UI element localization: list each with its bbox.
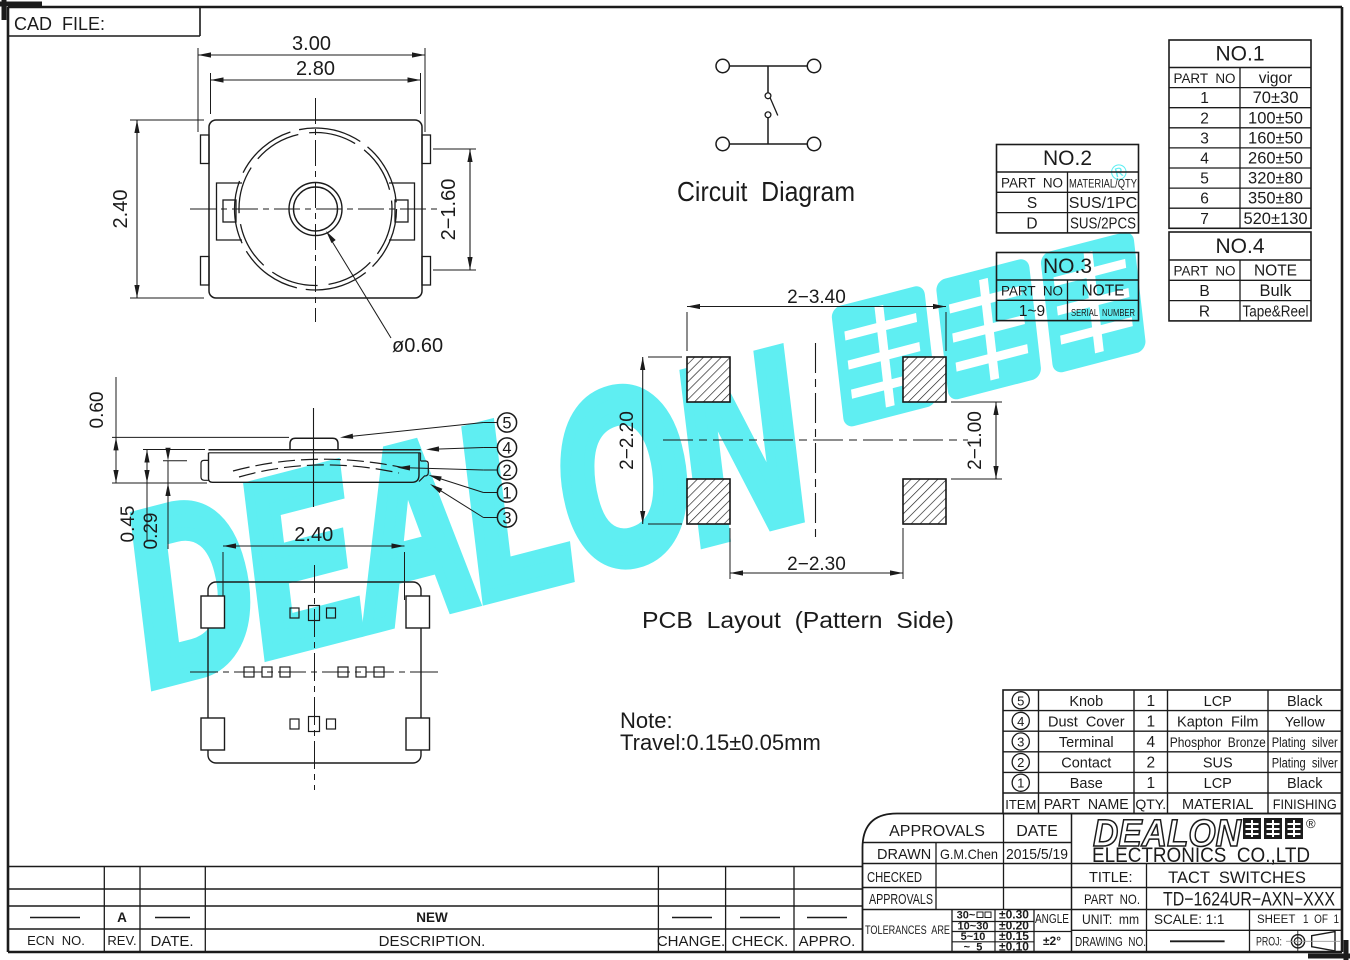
svg-text:DATE.: DATE. bbox=[150, 933, 193, 950]
svg-text:7: 7 bbox=[1200, 211, 1209, 228]
svg-text:1: 1 bbox=[502, 484, 511, 502]
svg-text:TITLE:: TITLE: bbox=[1089, 870, 1133, 886]
svg-text:PART NAME: PART NAME bbox=[1044, 797, 1129, 813]
svg-text:~ 5: ~ 5 bbox=[964, 942, 983, 954]
svg-text:CAD FILE:: CAD FILE: bbox=[14, 14, 105, 34]
svg-text:LCP: LCP bbox=[1204, 694, 1232, 710]
svg-text:PART NO: PART NO bbox=[1001, 284, 1063, 299]
svg-text:SUS/1PC: SUS/1PC bbox=[1069, 195, 1137, 212]
svg-text:0.60: 0.60 bbox=[87, 392, 108, 429]
svg-text:3: 3 bbox=[502, 509, 511, 527]
svg-text:±2°: ±2° bbox=[1043, 934, 1061, 948]
svg-text:1 OF 1: 1 OF 1 bbox=[1303, 914, 1339, 926]
svg-text:NO.1: NO.1 bbox=[1215, 43, 1264, 66]
svg-text:NEW: NEW bbox=[416, 910, 448, 925]
svg-text:5: 5 bbox=[1017, 693, 1024, 708]
svg-text:Dust Cover: Dust Cover bbox=[1048, 714, 1125, 730]
svg-text:Black: Black bbox=[1287, 776, 1323, 792]
svg-text:NO.3: NO.3 bbox=[1043, 255, 1092, 278]
svg-text:G.M.Chen: G.M.Chen bbox=[940, 846, 998, 862]
svg-text:Phosphor Bronze: Phosphor Bronze bbox=[1170, 734, 1266, 750]
svg-text:TOLERANCES ARE: TOLERANCES ARE bbox=[865, 925, 950, 937]
svg-text:SHEET: SHEET bbox=[1257, 914, 1295, 926]
svg-text:2: 2 bbox=[1200, 110, 1209, 127]
svg-text:1:1: 1:1 bbox=[1206, 912, 1225, 927]
svg-text:±0.10: ±0.10 bbox=[999, 940, 1029, 954]
svg-text:TACT SWITCHES: TACT SWITCHES bbox=[1168, 869, 1306, 887]
svg-text:320±80: 320±80 bbox=[1248, 170, 1303, 188]
svg-text:Bulk: Bulk bbox=[1259, 282, 1292, 300]
svg-text:5: 5 bbox=[502, 414, 511, 432]
svg-text:DRAWING NO.: DRAWING NO. bbox=[1075, 934, 1146, 949]
svg-text:1: 1 bbox=[1146, 693, 1155, 710]
svg-text:ITEM: ITEM bbox=[1005, 797, 1036, 812]
svg-text:160±50: 160±50 bbox=[1248, 129, 1303, 147]
svg-text:Plating silver: Plating silver bbox=[1272, 756, 1338, 771]
svg-text:1: 1 bbox=[1200, 90, 1209, 107]
svg-text:Circuit Diagram: Circuit Diagram bbox=[677, 176, 855, 207]
svg-text:S: S bbox=[1027, 195, 1037, 212]
svg-text:SUS/2PCS: SUS/2PCS bbox=[1070, 215, 1136, 232]
svg-text:Yellow: Yellow bbox=[1285, 713, 1326, 729]
svg-text:1~9: 1~9 bbox=[1019, 303, 1045, 320]
svg-text:MATERIAL/QTY: MATERIAL/QTY bbox=[1069, 179, 1137, 191]
svg-text:350±80: 350±80 bbox=[1248, 190, 1303, 208]
svg-text:4: 4 bbox=[1200, 150, 1209, 167]
svg-text:3: 3 bbox=[1200, 130, 1209, 147]
svg-text:APPROVALS: APPROVALS bbox=[869, 892, 933, 908]
svg-text:CHANGE.: CHANGE. bbox=[657, 933, 725, 950]
svg-text:Kapton Film: Kapton Film bbox=[1177, 714, 1258, 730]
svg-text:APPROVALS: APPROVALS bbox=[889, 823, 985, 840]
svg-text:Plating silver: Plating silver bbox=[1272, 735, 1338, 750]
svg-text:70±30: 70±30 bbox=[1253, 89, 1299, 107]
svg-text:PART NO: PART NO bbox=[1174, 264, 1236, 279]
svg-text:ECN NO.: ECN NO. bbox=[27, 933, 85, 948]
svg-text:ANGLE: ANGLE bbox=[1035, 912, 1069, 926]
svg-text:4: 4 bbox=[502, 439, 511, 457]
svg-text:2: 2 bbox=[502, 462, 511, 480]
svg-text:Tape&Reel: Tape&Reel bbox=[1243, 303, 1309, 320]
svg-text:260±50: 260±50 bbox=[1248, 149, 1303, 167]
svg-text:DESCRIPTION.: DESCRIPTION. bbox=[379, 933, 486, 950]
svg-text:1: 1 bbox=[1146, 713, 1155, 730]
svg-text:MATERIAL: MATERIAL bbox=[1182, 797, 1253, 813]
svg-text:APPRO.: APPRO. bbox=[799, 933, 856, 950]
svg-text:2−2.30: 2−2.30 bbox=[787, 554, 846, 575]
svg-text:FINISHING: FINISHING bbox=[1273, 796, 1337, 812]
svg-text:ELECTRONICS CO.,LTD: ELECTRONICS CO.,LTD bbox=[1092, 844, 1310, 867]
svg-text:1: 1 bbox=[1146, 775, 1155, 792]
svg-text:1: 1 bbox=[1017, 776, 1024, 791]
svg-text:2.40: 2.40 bbox=[110, 190, 132, 229]
svg-text:0.45: 0.45 bbox=[118, 506, 139, 543]
svg-text:2: 2 bbox=[1146, 755, 1155, 772]
svg-text:2−3.40: 2−3.40 bbox=[787, 287, 846, 308]
svg-text:DATE: DATE bbox=[1016, 823, 1057, 840]
svg-text:PCB Layout (Pattern Side): PCB Layout (Pattern Side) bbox=[642, 607, 954, 633]
svg-text:QTY.: QTY. bbox=[1135, 796, 1166, 812]
svg-text:5: 5 bbox=[1200, 171, 1209, 188]
svg-text:2.80: 2.80 bbox=[296, 58, 335, 80]
svg-text:PROJ:: PROJ: bbox=[1256, 935, 1282, 949]
svg-text:2.40: 2.40 bbox=[294, 524, 333, 546]
svg-text:4: 4 bbox=[1017, 714, 1024, 729]
svg-text:6: 6 bbox=[1200, 191, 1209, 208]
svg-text:R: R bbox=[1199, 303, 1210, 320]
svg-text:SCALE:: SCALE: bbox=[1154, 912, 1202, 927]
svg-text:CHECK.: CHECK. bbox=[732, 933, 789, 950]
svg-text:Base: Base bbox=[1070, 776, 1103, 792]
svg-text:®: ® bbox=[1306, 816, 1316, 831]
svg-text:CHECKED: CHECKED bbox=[867, 870, 922, 886]
svg-text:Knob: Knob bbox=[1069, 694, 1103, 710]
svg-text:ø0.60: ø0.60 bbox=[392, 335, 443, 357]
svg-text:0.29: 0.29 bbox=[141, 513, 162, 550]
svg-text:NO.2: NO.2 bbox=[1043, 147, 1092, 170]
svg-text:PART NO: PART NO bbox=[1174, 71, 1236, 86]
svg-text:3.00: 3.00 bbox=[292, 33, 331, 55]
svg-text:2015/5/19: 2015/5/19 bbox=[1006, 847, 1068, 863]
svg-text:100±50: 100±50 bbox=[1248, 109, 1303, 127]
svg-text:Terminal: Terminal bbox=[1059, 735, 1114, 751]
svg-text:UNIT: mm: UNIT: mm bbox=[1082, 912, 1139, 927]
svg-text:PART NO.: PART NO. bbox=[1084, 891, 1140, 907]
svg-text:2−1.00: 2−1.00 bbox=[965, 411, 986, 470]
svg-text:B: B bbox=[1199, 283, 1209, 300]
svg-text:REV.: REV. bbox=[107, 933, 136, 948]
svg-text:DRAWN: DRAWN bbox=[877, 847, 931, 863]
svg-text:SERIAL NUMBER: SERIAL NUMBER bbox=[1071, 307, 1135, 319]
svg-text:Contact: Contact bbox=[1061, 756, 1111, 772]
svg-text:520±130: 520±130 bbox=[1243, 210, 1307, 228]
svg-text:D: D bbox=[1026, 215, 1037, 232]
svg-text:NOTE: NOTE bbox=[1081, 283, 1124, 300]
svg-text:NO.4: NO.4 bbox=[1215, 235, 1264, 258]
svg-text:Black: Black bbox=[1287, 694, 1323, 710]
svg-text:PART NO: PART NO bbox=[1001, 176, 1063, 191]
svg-text:TD−1624UR−AXN−XXX: TD−1624UR−AXN−XXX bbox=[1163, 889, 1335, 911]
svg-text:2: 2 bbox=[1017, 755, 1024, 770]
svg-text:3: 3 bbox=[1017, 735, 1024, 750]
svg-text:SUS: SUS bbox=[1203, 756, 1233, 772]
svg-text:2−2.20: 2−2.20 bbox=[617, 411, 638, 470]
svg-text:Travel:0.15±0.05mm: Travel:0.15±0.05mm bbox=[620, 730, 821, 755]
svg-text:NOTE: NOTE bbox=[1254, 263, 1297, 280]
svg-text:2−1.60: 2−1.60 bbox=[438, 179, 460, 241]
svg-text:LCP: LCP bbox=[1204, 776, 1232, 792]
svg-text:4: 4 bbox=[1146, 734, 1155, 751]
svg-text:vigor: vigor bbox=[1259, 70, 1293, 87]
svg-text:A: A bbox=[117, 910, 127, 925]
